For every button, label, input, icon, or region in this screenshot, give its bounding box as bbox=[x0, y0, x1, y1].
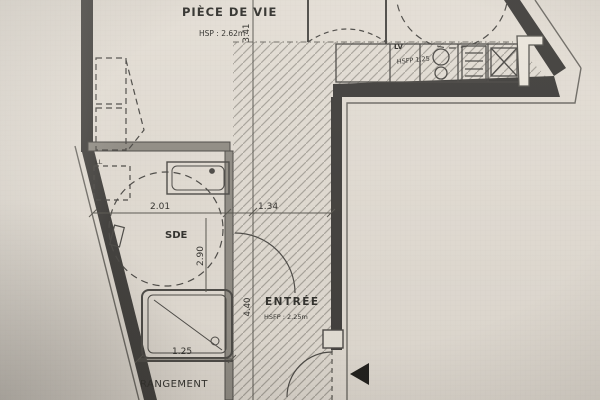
label-entree: ENTRÉE bbox=[265, 295, 320, 308]
dim-sde-depth: 2.90 bbox=[196, 246, 206, 266]
floor-plan-svg: PIÈCE DE VIE HSP : 2.62m LV HSFP 1.25 LL… bbox=[0, 0, 600, 400]
entrance-door-leaf bbox=[323, 330, 343, 348]
label-rangement: RANGEMENT bbox=[140, 379, 208, 390]
label-lv: LV bbox=[394, 43, 403, 51]
label-ll: LL bbox=[95, 158, 103, 166]
label-sde: SDE bbox=[165, 230, 188, 241]
dim-sde-width: 2.01 bbox=[150, 202, 170, 212]
dim-entree-depth: 4.40 bbox=[243, 298, 253, 317]
dim-hall-width: 1.34 bbox=[258, 202, 278, 212]
dim-upper-depth: 3.41 bbox=[242, 24, 252, 43]
label-piece-de-vie: PIÈCE DE VIE bbox=[182, 4, 277, 19]
floor-plan-photo: PIÈCE DE VIE HSP : 2.62m LV HSFP 1.25 LL… bbox=[0, 0, 600, 400]
ceiling-piece-de-vie: HSP : 2.62m bbox=[199, 29, 245, 38]
ceiling-entree: HSFP : 2.25m bbox=[264, 313, 308, 321]
dim-rangement-width: 1.25 bbox=[172, 347, 192, 357]
